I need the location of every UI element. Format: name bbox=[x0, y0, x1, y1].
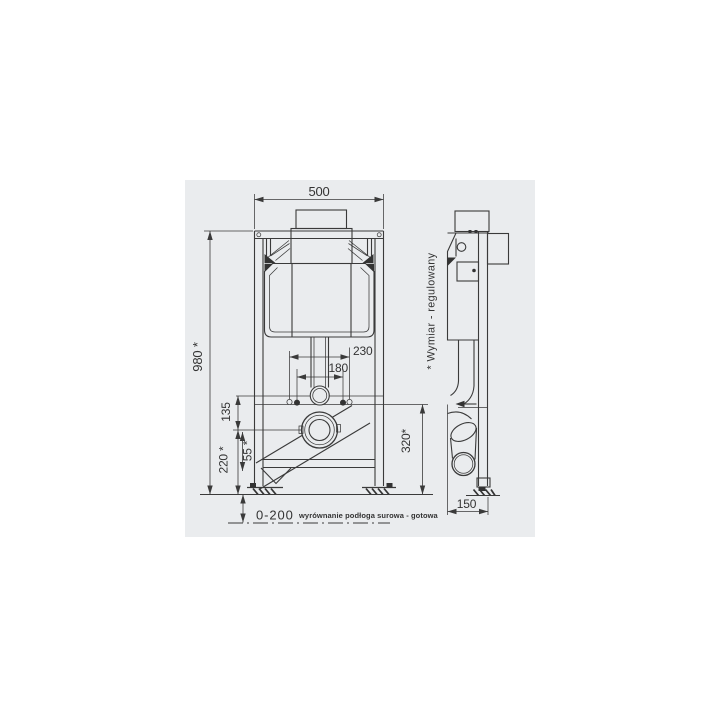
dim-rod-outer-label: 230 bbox=[353, 344, 373, 358]
dim-rod-inner-label: 180 bbox=[329, 361, 349, 375]
dim-flush-offset-label: 135 bbox=[219, 402, 233, 422]
rod-hole-outer-right bbox=[347, 399, 352, 404]
dim-floor-leveling-label: 0-200 bbox=[256, 508, 294, 523]
rod-hole-inner-right bbox=[340, 400, 346, 406]
dim-width-label: 500 bbox=[308, 184, 329, 199]
rod-hole-outer-left bbox=[287, 399, 292, 404]
technical-drawing-page: 500 980 * 230 180 135 220 * 55 * 320* 0-… bbox=[0, 0, 720, 720]
drain-pipe-opening bbox=[452, 453, 475, 476]
dim-depth-label: 150 bbox=[457, 497, 477, 511]
dim-offset-small-label: 55 * bbox=[241, 440, 255, 461]
floor-note-label: wyrównanie podłoga surowa - gotowa bbox=[298, 511, 439, 520]
adjustable-note-label: * Wymiar - regulowany bbox=[426, 252, 438, 369]
dim-height-label: 980 * bbox=[190, 342, 205, 372]
dim-outlet-height-label: 220 * bbox=[217, 446, 231, 474]
installation-frame-drawing: 500 980 * 230 180 135 220 * 55 * 320* 0-… bbox=[0, 0, 720, 720]
dim-lower-height-label: 320* bbox=[399, 429, 413, 453]
rod-hole-inner-left bbox=[294, 400, 300, 406]
